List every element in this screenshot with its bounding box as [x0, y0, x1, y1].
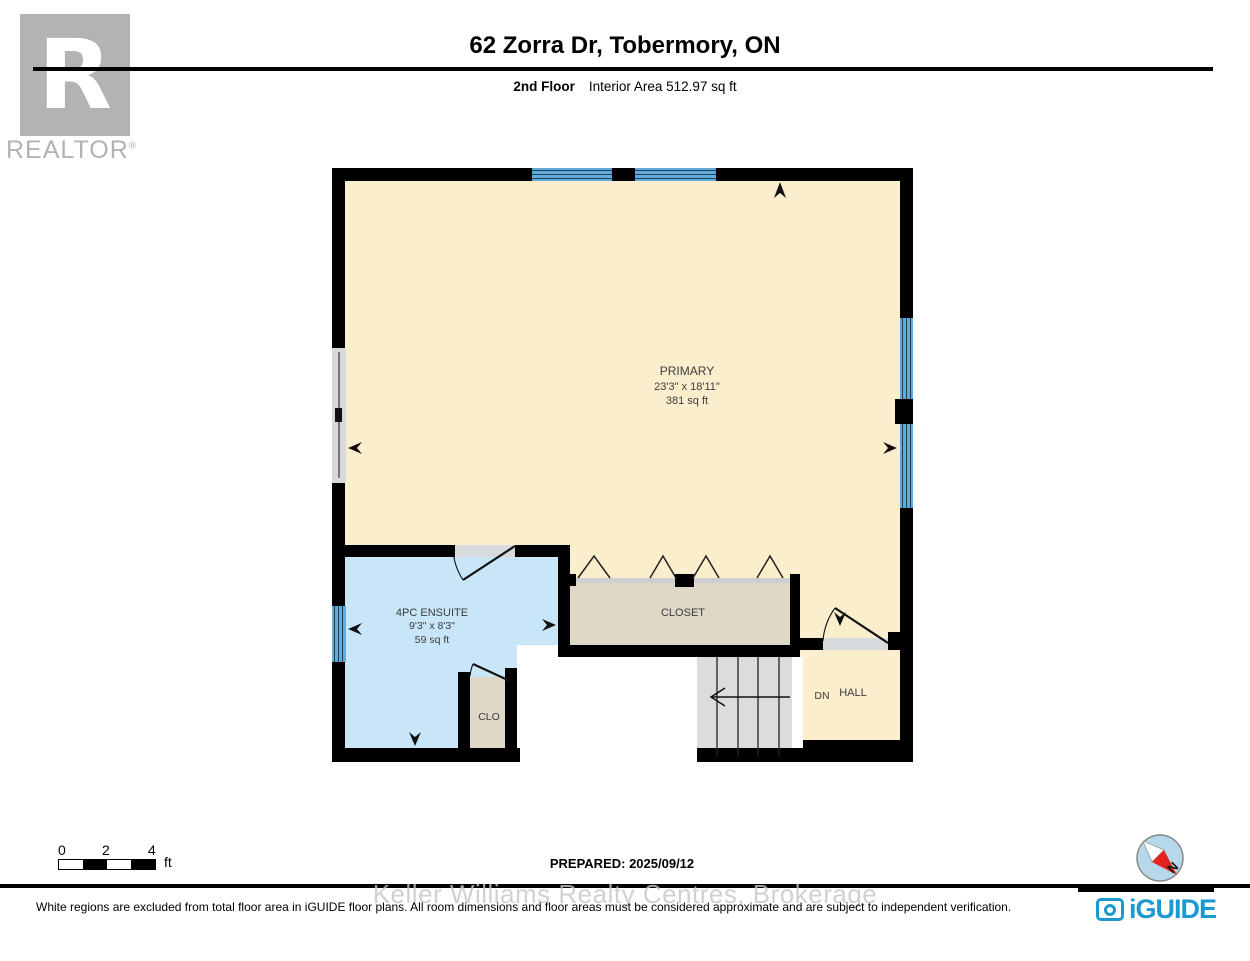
prepared-date: PREPARED: 2025/09/12 [0, 856, 1244, 871]
closet-left-nub [566, 574, 576, 586]
iguide-camera-icon [1096, 898, 1124, 921]
realtor-logo-text: REALTOR® [6, 136, 146, 165]
hall-label: HALL [839, 686, 867, 700]
excluded-white-region [517, 645, 697, 762]
closet-bottom-wall [558, 645, 800, 657]
iguide-wordmark: iGUIDE [1129, 894, 1216, 925]
clo-left-wall [458, 672, 470, 748]
hall-door-opening [823, 638, 888, 650]
window-right-2 [900, 424, 913, 508]
ensuite-top-wall [332, 545, 570, 557]
title-divider [33, 67, 1213, 71]
floor-label: 2nd Floor [513, 79, 575, 94]
top-wall [332, 168, 913, 181]
window-right-post [895, 399, 913, 424]
closet-label: CLOSET [661, 606, 705, 620]
left-wall-opening [332, 348, 346, 483]
bottom-wall-right [697, 748, 913, 762]
room-area: 59 sq ft [396, 634, 468, 648]
window-ensuite [332, 606, 346, 662]
iguide-logo: iGUIDE [1096, 894, 1216, 925]
closet-right-wall [790, 574, 800, 645]
window-top-2 [635, 168, 716, 181]
room-name: PRIMARY [654, 364, 720, 380]
floorplan: PRIMARY 23'3" x 18'11" 381 sq ft 4PC ENS… [332, 168, 913, 762]
ensuite-door-opening [455, 545, 515, 557]
primary-room-label: PRIMARY 23'3" x 18'11" 381 sq ft [654, 364, 720, 408]
clo-label: CLO [478, 711, 500, 725]
page-title: 62 Zorra Dr, Tobermory, ON [0, 32, 1250, 60]
floor-subtitle: 2nd FloorInterior Area 512.97 sq ft [0, 79, 1250, 94]
bottom-wall-left [332, 748, 520, 762]
room-name: 4PC ENSUITE [396, 606, 468, 620]
floorplan-page: R REALTOR® 62 Zorra Dr, Tobermory, ON 2n… [0, 0, 1250, 961]
room-dimensions: 23'3" x 18'11" [654, 380, 720, 394]
room-dimensions: 9'3" x 8'3" [396, 620, 468, 634]
room-area: 381 sq ft [654, 394, 720, 408]
realtor-word: REALTOR [6, 136, 129, 164]
window-right-1 [900, 318, 913, 399]
interior-area-label: Interior Area 512.97 sq ft [589, 79, 737, 94]
ensuite-right-wall [558, 545, 570, 657]
ensuite-room-label: 4PC ENSUITE 9'3" x 8'3" 59 sq ft [396, 606, 468, 648]
stairs [697, 657, 792, 757]
window-top-1 [532, 168, 612, 181]
dn-label: DN [814, 690, 829, 704]
hall-door-left-wall [800, 638, 823, 650]
closet-mid-post [675, 574, 694, 587]
disclaimer-text: White regions are excluded from total fl… [36, 900, 1011, 914]
registered-mark: ® [129, 141, 137, 152]
stair-hall-gap [792, 657, 803, 748]
clo-right-wall [505, 668, 517, 748]
